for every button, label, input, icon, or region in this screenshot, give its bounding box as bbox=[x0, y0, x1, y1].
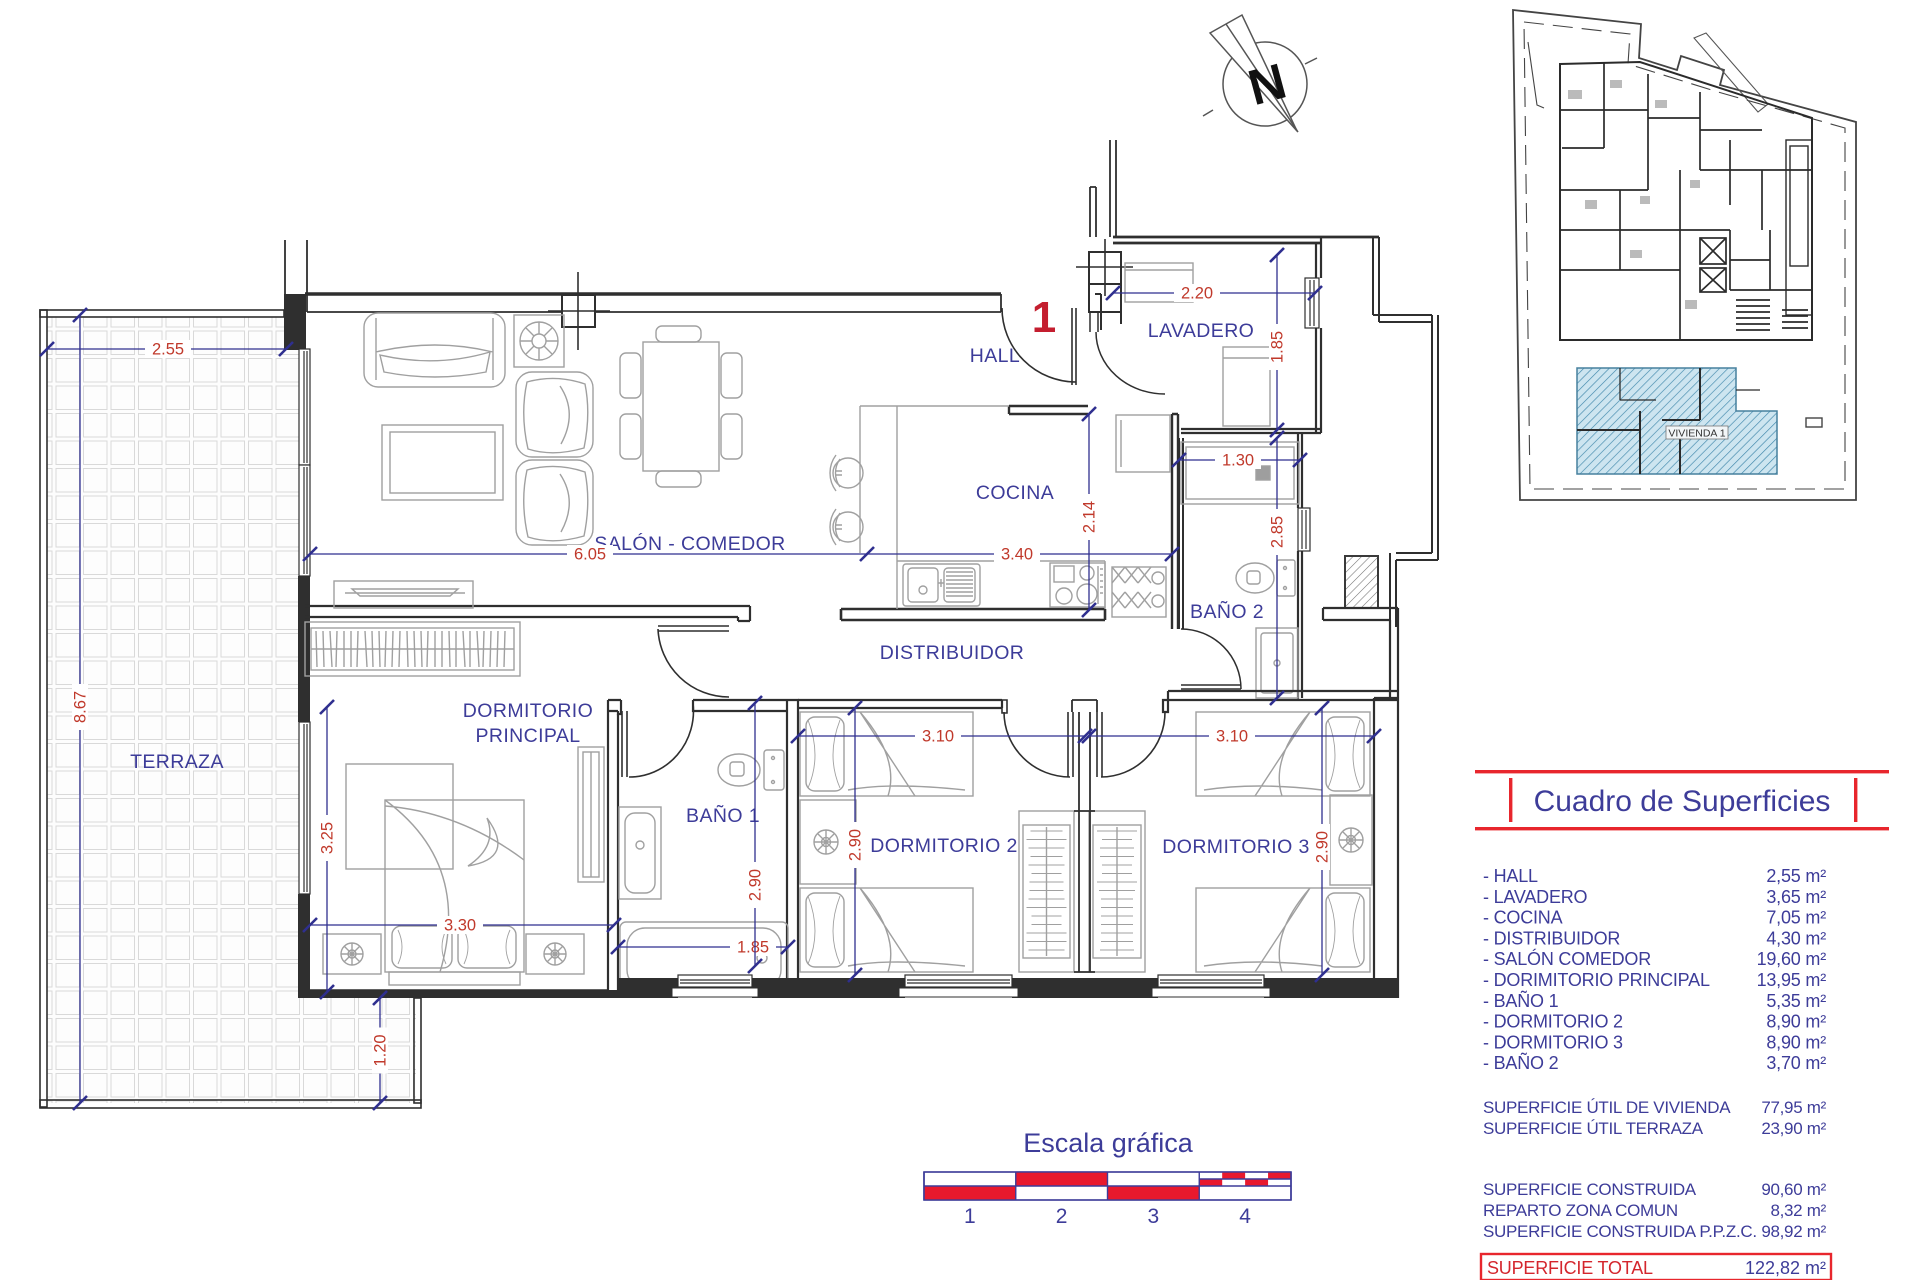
svg-text:4: 4 bbox=[1239, 1205, 1251, 1228]
svg-text:3,70 m²: 3,70 m² bbox=[1766, 1053, 1826, 1073]
svg-text:2.14: 2.14 bbox=[1081, 501, 1099, 533]
svg-text:SUPERFICIE ÚTIL DE VIVIENDA: SUPERFICIE ÚTIL DE VIVIENDA bbox=[1483, 1098, 1731, 1117]
svg-text:3.10: 3.10 bbox=[922, 728, 954, 746]
svg-text:23,90 m²: 23,90 m² bbox=[1761, 1119, 1826, 1138]
svg-text:1.85: 1.85 bbox=[1269, 331, 1287, 363]
svg-text:2.85: 2.85 bbox=[1269, 516, 1287, 548]
svg-text:- BAÑO 2: - BAÑO 2 bbox=[1483, 1052, 1559, 1073]
svg-text:98,92 m²: 98,92 m² bbox=[1761, 1222, 1826, 1241]
svg-text:REPARTO ZONA COMUN: REPARTO ZONA COMUN bbox=[1483, 1201, 1678, 1220]
svg-text:1: 1 bbox=[964, 1205, 976, 1228]
svg-text:19,60 m²: 19,60 m² bbox=[1757, 949, 1827, 969]
svg-text:2.55: 2.55 bbox=[152, 341, 184, 359]
svg-text:LAVADERO: LAVADERO bbox=[1148, 320, 1255, 342]
svg-text:1: 1 bbox=[1032, 293, 1056, 342]
svg-text:2.20: 2.20 bbox=[1181, 285, 1213, 303]
svg-text:DISTRIBUIDOR: DISTRIBUIDOR bbox=[880, 642, 1025, 664]
svg-text:SUPERFICIE CONSTRUIDA: SUPERFICIE CONSTRUIDA bbox=[1483, 1180, 1697, 1199]
svg-text:2.90: 2.90 bbox=[847, 829, 865, 861]
svg-text:3.40: 3.40 bbox=[1001, 546, 1033, 564]
svg-text:8,32 m²: 8,32 m² bbox=[1770, 1201, 1826, 1220]
svg-text:SUPERFICIE CONSTRUIDA P.P.Z.C.: SUPERFICIE CONSTRUIDA P.P.Z.C. bbox=[1483, 1222, 1757, 1241]
svg-text:- DORIMITORIO PRINCIPAL: - DORIMITORIO PRINCIPAL bbox=[1483, 970, 1710, 990]
svg-text:2,55 m²: 2,55 m² bbox=[1766, 866, 1826, 886]
svg-text:- SALÓN COMEDOR: - SALÓN COMEDOR bbox=[1483, 948, 1651, 969]
svg-text:- BAÑO 1: - BAÑO 1 bbox=[1483, 990, 1559, 1011]
svg-text:90,60 m²: 90,60 m² bbox=[1761, 1180, 1826, 1199]
svg-text:3,65 m²: 3,65 m² bbox=[1766, 887, 1826, 907]
svg-text:3.30: 3.30 bbox=[444, 917, 476, 935]
svg-text:PRINCIPAL: PRINCIPAL bbox=[475, 725, 580, 747]
svg-text:- COCINA: - COCINA bbox=[1483, 908, 1563, 928]
svg-text:13,95 m²: 13,95 m² bbox=[1757, 970, 1827, 990]
svg-text:COCINA: COCINA bbox=[976, 482, 1054, 504]
svg-text:- DORMITORIO 2: - DORMITORIO 2 bbox=[1483, 1012, 1623, 1032]
svg-text:SUPERFICIE TOTAL: SUPERFICIE TOTAL bbox=[1487, 1258, 1653, 1278]
svg-text:- LAVADERO: - LAVADERO bbox=[1483, 887, 1588, 907]
svg-text:TERRAZA: TERRAZA bbox=[130, 751, 224, 773]
svg-text:3.25: 3.25 bbox=[319, 822, 337, 854]
svg-text:SUPERFICIE ÚTIL TERRAZA: SUPERFICIE ÚTIL TERRAZA bbox=[1483, 1119, 1704, 1138]
svg-text:1.20: 1.20 bbox=[372, 1034, 390, 1066]
svg-text:- DISTRIBUIDOR: - DISTRIBUIDOR bbox=[1483, 928, 1620, 948]
svg-text:DORMITORIO: DORMITORIO bbox=[463, 700, 593, 722]
svg-text:- DORMITORIO 3: - DORMITORIO 3 bbox=[1483, 1032, 1623, 1052]
svg-text:5,35 m²: 5,35 m² bbox=[1766, 991, 1826, 1011]
svg-text:2.90: 2.90 bbox=[747, 869, 765, 901]
svg-text:1.85: 1.85 bbox=[737, 939, 769, 957]
svg-text:BAÑO 2: BAÑO 2 bbox=[1190, 599, 1264, 623]
svg-text:3: 3 bbox=[1148, 1205, 1160, 1228]
svg-text:122,82 m²: 122,82 m² bbox=[1745, 1258, 1826, 1278]
svg-text:Escala gráfica: Escala gráfica bbox=[1023, 1128, 1194, 1158]
svg-text:8,90 m²: 8,90 m² bbox=[1766, 1012, 1826, 1032]
svg-text:DORMITORIO 3: DORMITORIO 3 bbox=[1162, 836, 1309, 858]
svg-text:BAÑO 1: BAÑO 1 bbox=[686, 803, 760, 827]
svg-text:HALL: HALL bbox=[970, 345, 1020, 367]
svg-text:6.05: 6.05 bbox=[574, 546, 606, 564]
svg-text:3.10: 3.10 bbox=[1216, 728, 1248, 746]
svg-text:7,05 m²: 7,05 m² bbox=[1766, 908, 1826, 928]
svg-text:77,95 m²: 77,95 m² bbox=[1761, 1098, 1826, 1117]
svg-text:- HALL: - HALL bbox=[1483, 866, 1538, 886]
svg-text:8.67: 8.67 bbox=[72, 691, 90, 723]
svg-text:SALÓN - COMEDOR: SALÓN - COMEDOR bbox=[594, 532, 785, 555]
svg-text:DORMITORIO 2: DORMITORIO 2 bbox=[870, 835, 1017, 857]
svg-text:VIVIENDA 1: VIVIENDA 1 bbox=[1668, 428, 1725, 440]
svg-text:Cuadro de Superficies: Cuadro de Superficies bbox=[1534, 785, 1831, 818]
svg-text:8,90 m²: 8,90 m² bbox=[1766, 1032, 1826, 1052]
svg-text:1.30: 1.30 bbox=[1222, 452, 1254, 470]
svg-text:2: 2 bbox=[1056, 1205, 1068, 1228]
svg-text:4,30 m²: 4,30 m² bbox=[1766, 928, 1826, 948]
svg-text:2.90: 2.90 bbox=[1314, 831, 1332, 863]
